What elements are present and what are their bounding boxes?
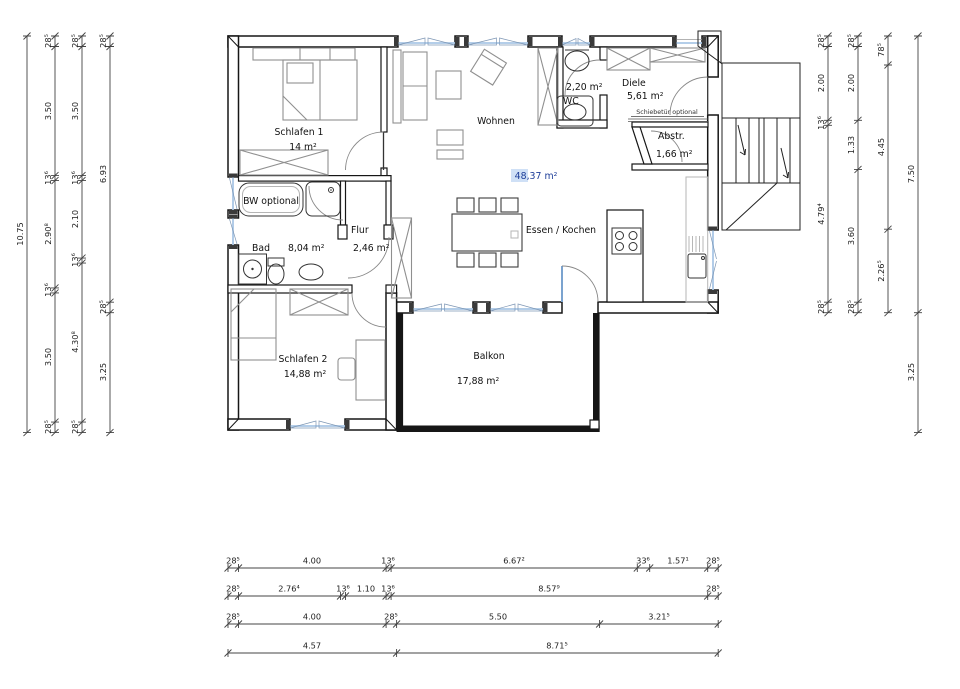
dim-label: 4.79⁴ (816, 203, 826, 225)
toilet (268, 264, 284, 284)
label-bad: Bad (252, 243, 270, 254)
dim-label: 10.75 (15, 222, 25, 245)
desk (356, 340, 385, 400)
dim-label: 13⁶ (381, 584, 395, 594)
dim-label: 4.30⁸ (70, 331, 80, 353)
dim-label: 8.71⁵ (546, 641, 568, 651)
label-flur: Flur (351, 225, 369, 236)
dim-label: 4.00 (303, 556, 321, 566)
dim-label: 2.76⁴ (278, 584, 300, 594)
dim-label: 28⁵ (816, 34, 826, 48)
dim-label: 3.25 (906, 363, 916, 381)
dim-label: 28⁵ (846, 300, 856, 314)
dim-label: 3.50 (70, 102, 80, 120)
dim-label: 28⁵ (226, 556, 240, 566)
dim-label: 28⁵ (816, 300, 826, 314)
dim-label: 3.50 (43, 348, 53, 366)
label-bad-area: 8,04 m² (288, 243, 325, 254)
wc-washbasin (565, 51, 589, 71)
dim-label: 28⁵ (43, 34, 53, 48)
desk-chair (338, 358, 355, 380)
label-wohnen: Wohnen (477, 116, 515, 127)
wardrobe-hall (392, 218, 412, 298)
dishwasher (689, 236, 703, 252)
door-schlafen1 (346, 132, 384, 170)
window-left-2 (229, 215, 238, 250)
dim-label: 13⁶ (70, 252, 80, 266)
dim-label: 28⁵ (706, 584, 720, 594)
coffee-table-2 (437, 150, 463, 159)
label-abstellraum: Abstr. (658, 131, 685, 142)
dim-label: 3.21⁵ (648, 612, 670, 622)
dim-label: 1.10 (357, 584, 375, 594)
label-total-area: 48,37 m² (515, 171, 558, 182)
door-schlafen2 (352, 293, 386, 327)
wardrobe-schlafen1 (240, 150, 328, 175)
window-south-1 (409, 303, 478, 312)
label-abstellraum-area: 1,66 m² (656, 149, 693, 160)
dim-label: 4.00 (303, 612, 321, 622)
dim-chain-bottom-3 (225, 620, 722, 628)
window-right-kitchen (709, 227, 718, 295)
dim-label: 2.00 (816, 74, 826, 92)
dim-label: 28⁵ (706, 556, 720, 566)
window-south-2 (486, 303, 548, 312)
label-balkon-area: 17,88 m² (457, 376, 500, 387)
dim-label: 6.93 (98, 165, 108, 183)
dim-label: 8.57⁹ (538, 584, 560, 594)
dim-label: 13⁶ (381, 556, 395, 566)
kitchen-sink (688, 254, 706, 278)
label-schlafen1: Schlafen 1 (275, 127, 324, 138)
floor-plan-page: 10.75 28⁵ 3.50 13⁶ 2.90⁸ 13⁶ 3.50 28⁵ 28… (0, 0, 960, 689)
label-bw-optional: BW optional (243, 196, 299, 207)
label-schlafen1-area: 14 m² (289, 142, 317, 153)
stair-arrow-down (781, 148, 789, 178)
dim-label: 3.50 (43, 102, 53, 120)
dim-label: 33⁶ (636, 556, 650, 566)
dim-label: 2.00 (846, 74, 856, 92)
label-flur-area: 2,46 m² (353, 243, 390, 254)
dim-label: 2.10 (70, 210, 80, 228)
label-diele: Diele (622, 78, 646, 89)
dim-label: 3.60 (846, 227, 856, 245)
dim-label: 1.33 (846, 136, 856, 154)
label-balkon: Balkon (473, 351, 504, 362)
window-top-2 (464, 37, 533, 46)
dim-label: 13⁶ (70, 170, 80, 184)
window-top-1 (394, 37, 460, 46)
dim-chain-left-3 (78, 33, 86, 437)
dim-label: 28⁵ (384, 612, 398, 622)
dim-label: 28⁵ (70, 34, 80, 48)
dim-label: 4.45 (876, 138, 886, 156)
dim-label: 13⁶ (816, 115, 826, 129)
dim-label: 7.50 (906, 165, 916, 183)
sofa (393, 50, 427, 123)
coffee-table (437, 130, 463, 145)
label-schlafen2-area: 14,88 m² (284, 369, 327, 380)
floor-plan-canvas: 10.75 28⁵ 3.50 13⁶ 2.90⁸ 13⁶ 3.50 28⁵ 28… (0, 0, 960, 689)
window-schlafen2 (286, 420, 350, 429)
dim-label: 28⁵ (70, 420, 80, 434)
dim-label: 28⁵ (98, 300, 108, 314)
bed-schlafen1 (253, 48, 357, 120)
window-left-1 (229, 174, 238, 215)
dim-label: 78⁵ (876, 43, 886, 57)
dim-label: 5.50 (489, 612, 507, 622)
dimension-chains: 10.75 28⁵ 3.50 13⁶ 2.90⁸ 13⁶ 3.50 28⁵ 28… (15, 33, 922, 658)
dim-label: 13⁶ (43, 282, 53, 296)
label-schiebetuer: Schiebetür optional (636, 109, 698, 116)
dim-chain-bottom-4 (225, 649, 722, 657)
dim-label: 3.25 (98, 363, 108, 381)
cupboard-wohnen (538, 48, 558, 125)
dim-label: 2.90⁸ (43, 223, 53, 245)
dim-label: 28⁵ (43, 420, 53, 434)
dim-label: 28⁵ (226, 584, 240, 594)
stair-arrow-up (738, 125, 746, 155)
balcony-parapet (397, 313, 600, 432)
dim-label: 28⁵ (846, 34, 856, 48)
dim-label: 13⁶ (43, 170, 53, 184)
label-diele-area: 5,61 m² (627, 91, 664, 102)
dim-label: 4.57 (303, 641, 321, 651)
dim-label: 1.57¹ (667, 556, 689, 566)
dim-label: 28⁵ (98, 34, 108, 48)
label-wc: WC (563, 96, 579, 107)
bidet (299, 264, 323, 280)
dim-label: 28⁵ (226, 612, 240, 622)
balcony-drain (590, 420, 599, 429)
window-top-3 (558, 37, 595, 46)
label-essen-kochen: Essen / Kochen (526, 225, 596, 236)
wardrobe-diele (607, 48, 705, 70)
armchair (471, 49, 507, 85)
side-table (436, 71, 461, 99)
balcony-door (562, 266, 598, 302)
toilet-tank (268, 258, 284, 266)
label-schlafen2: Schlafen 2 (279, 354, 328, 365)
dim-label: 6.67² (503, 556, 525, 566)
label-wc-area: 2,20 m² (566, 82, 603, 93)
dim-label: 13⁶ (336, 584, 350, 594)
dim-label: 2.26⁵ (876, 260, 886, 282)
